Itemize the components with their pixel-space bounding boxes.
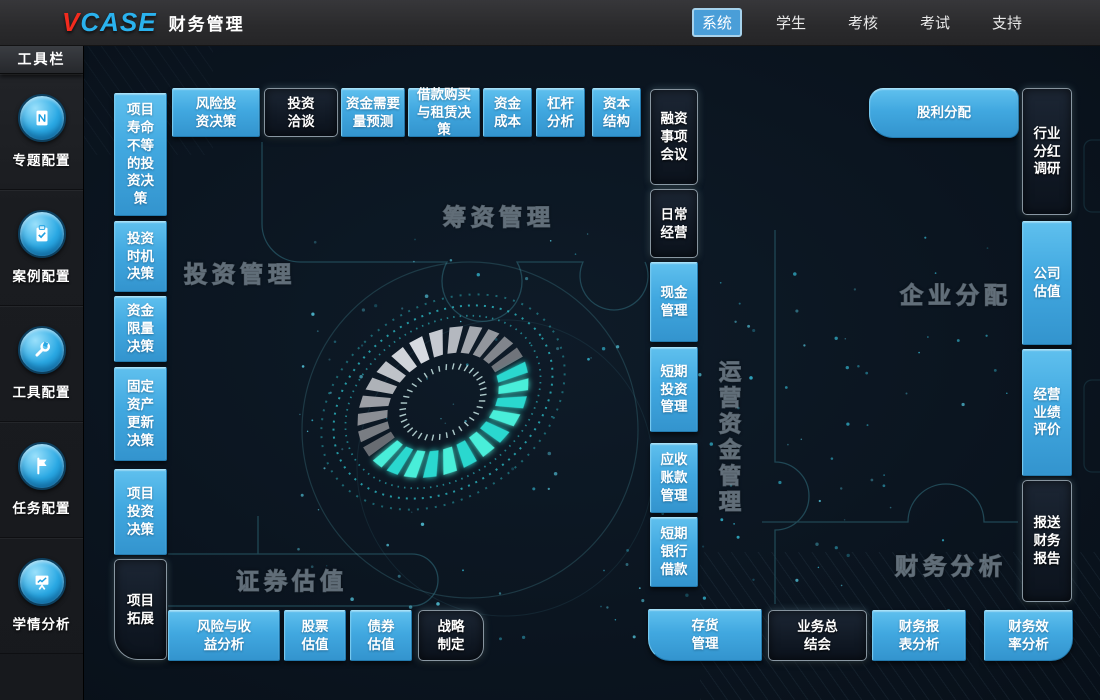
- tile-accounts-receivable-management[interactable]: 应收账款管理: [650, 443, 698, 513]
- region-label-financial-analysis: 财务分析: [895, 547, 1007, 581]
- tile-fixed-asset-renewal-decision[interactable]: 固定资产更新决策: [114, 367, 167, 461]
- menu-item-exam[interactable]: 考试: [912, 10, 958, 35]
- tile-cash-management[interactable]: 现金管理: [650, 262, 698, 342]
- tile-venture-investment-decision[interactable]: 风险投资决策: [172, 88, 260, 137]
- tile-strategy-formulation[interactable]: 战略制定: [418, 610, 484, 661]
- menu-item-assessment[interactable]: 考核: [840, 10, 886, 35]
- tile-financial-statement-analysis[interactable]: 财务报表分析: [872, 610, 966, 661]
- vcase-logo: VCASE: [62, 7, 157, 38]
- tile-short-term-investment-management[interactable]: 短期投资管理: [650, 347, 698, 432]
- tile-operating-performance-evaluation[interactable]: 经营业绩评价: [1022, 349, 1072, 476]
- sidebar-item-label: 案例配置: [13, 265, 71, 285]
- tile-risk-and-return-analysis[interactable]: 风险与收益分析: [168, 610, 280, 661]
- chart-board-icon: [18, 558, 66, 606]
- page-title: 财务管理: [169, 10, 245, 35]
- logo-case: CASE: [80, 7, 156, 37]
- tile-leverage-analysis[interactable]: 杠杆分析: [536, 88, 585, 137]
- region-label-securities-valuation: 证券估值: [236, 562, 348, 596]
- tile-stock-valuation[interactable]: 股票估值: [284, 610, 346, 661]
- tile-investment-negotiation[interactable]: 投资洽谈: [264, 88, 338, 137]
- menu-item-support[interactable]: 支持: [984, 10, 1030, 35]
- tile-dividend-distribution[interactable]: 股利分配: [869, 88, 1019, 138]
- sidebar-item-label: 任务配置: [13, 497, 71, 517]
- tile-short-term-bank-loan[interactable]: 短期银行借款: [650, 517, 698, 587]
- logo-v: V: [62, 7, 80, 37]
- tile-capital-limit-decision[interactable]: 资金限量决策: [114, 296, 167, 362]
- toolbar-sidebar: 工具栏 专题配置 案例配置 工具配置 任务配置: [0, 45, 84, 700]
- clipboard-icon: [18, 210, 66, 258]
- top-navbar: VCASE 财务管理 系统 学生 考核 考试 支持: [0, 0, 1100, 46]
- tile-loan-purchase-vs-lease-decision[interactable]: 借款购买与租赁决策: [408, 88, 480, 137]
- tile-bond-valuation[interactable]: 债券估值: [350, 610, 412, 661]
- tile-financial-efficiency-analysis[interactable]: 财务效率分析: [984, 610, 1073, 661]
- sidebar-item-label: 专题配置: [13, 149, 71, 169]
- top-menu: 系统 学生 考核 考试 支持: [692, 0, 1030, 45]
- tile-submit-financial-report[interactable]: 报送财务报告: [1022, 480, 1072, 602]
- tile-company-valuation[interactable]: 公司估值: [1022, 221, 1072, 345]
- flag-icon: [18, 442, 66, 490]
- tile-financing-matters-meeting[interactable]: 融资事项会议: [650, 89, 698, 185]
- sidebar-item-topic-config[interactable]: 专题配置: [0, 74, 83, 190]
- book-icon: [18, 94, 66, 142]
- tile-capital-requirement-forecast[interactable]: 资金需要量预测: [341, 88, 405, 137]
- tile-inventory-management[interactable]: 存货管理: [648, 609, 762, 661]
- menu-item-system[interactable]: 系统: [692, 8, 742, 37]
- sidebar-item-label: 学情分析: [13, 613, 71, 633]
- region-label-enterprise-distribution: 企业分配: [900, 276, 1012, 310]
- tile-capital-structure[interactable]: 资本结构: [592, 88, 641, 137]
- sidebar-item-learning-analysis[interactable]: 学情分析: [0, 538, 83, 654]
- tile-project-investment-decision[interactable]: 项目投资决策: [114, 469, 167, 555]
- sidebar-item-task-config[interactable]: 任务配置: [0, 422, 83, 538]
- tile-industry-dividend-research[interactable]: 行业分红调研: [1022, 88, 1072, 215]
- sidebar-item-case-config[interactable]: 案例配置: [0, 190, 83, 306]
- tile-business-summary-meeting[interactable]: 业务总结会: [768, 610, 867, 661]
- tile-investment-timing-decision[interactable]: 投资时机决策: [114, 221, 167, 292]
- tile-project-lifespan-investment-decision[interactable]: 项目寿命不等的投资决策: [114, 93, 167, 216]
- region-label-working-capital-management: 运营资金管理: [712, 360, 744, 516]
- tile-capital-cost[interactable]: 资金成本: [483, 88, 532, 137]
- region-label-financing-management: 筹资管理: [443, 198, 555, 232]
- tile-daily-operation[interactable]: 日常经营: [650, 189, 698, 258]
- sidebar-item-label: 工具配置: [13, 381, 71, 401]
- sidebar-item-tool-config[interactable]: 工具配置: [0, 306, 83, 422]
- tile-project-expansion[interactable]: 项目拓展: [114, 559, 167, 660]
- wrench-icon: [18, 326, 66, 374]
- menu-item-student[interactable]: 学生: [768, 10, 814, 35]
- region-label-investment-management: 投资管理: [184, 255, 296, 289]
- toolbar-header: 工具栏: [0, 45, 83, 74]
- app-window: VCASE 财务管理 系统 学生 考核 考试 支持 工具栏 专题配置 案例配置: [0, 0, 1100, 700]
